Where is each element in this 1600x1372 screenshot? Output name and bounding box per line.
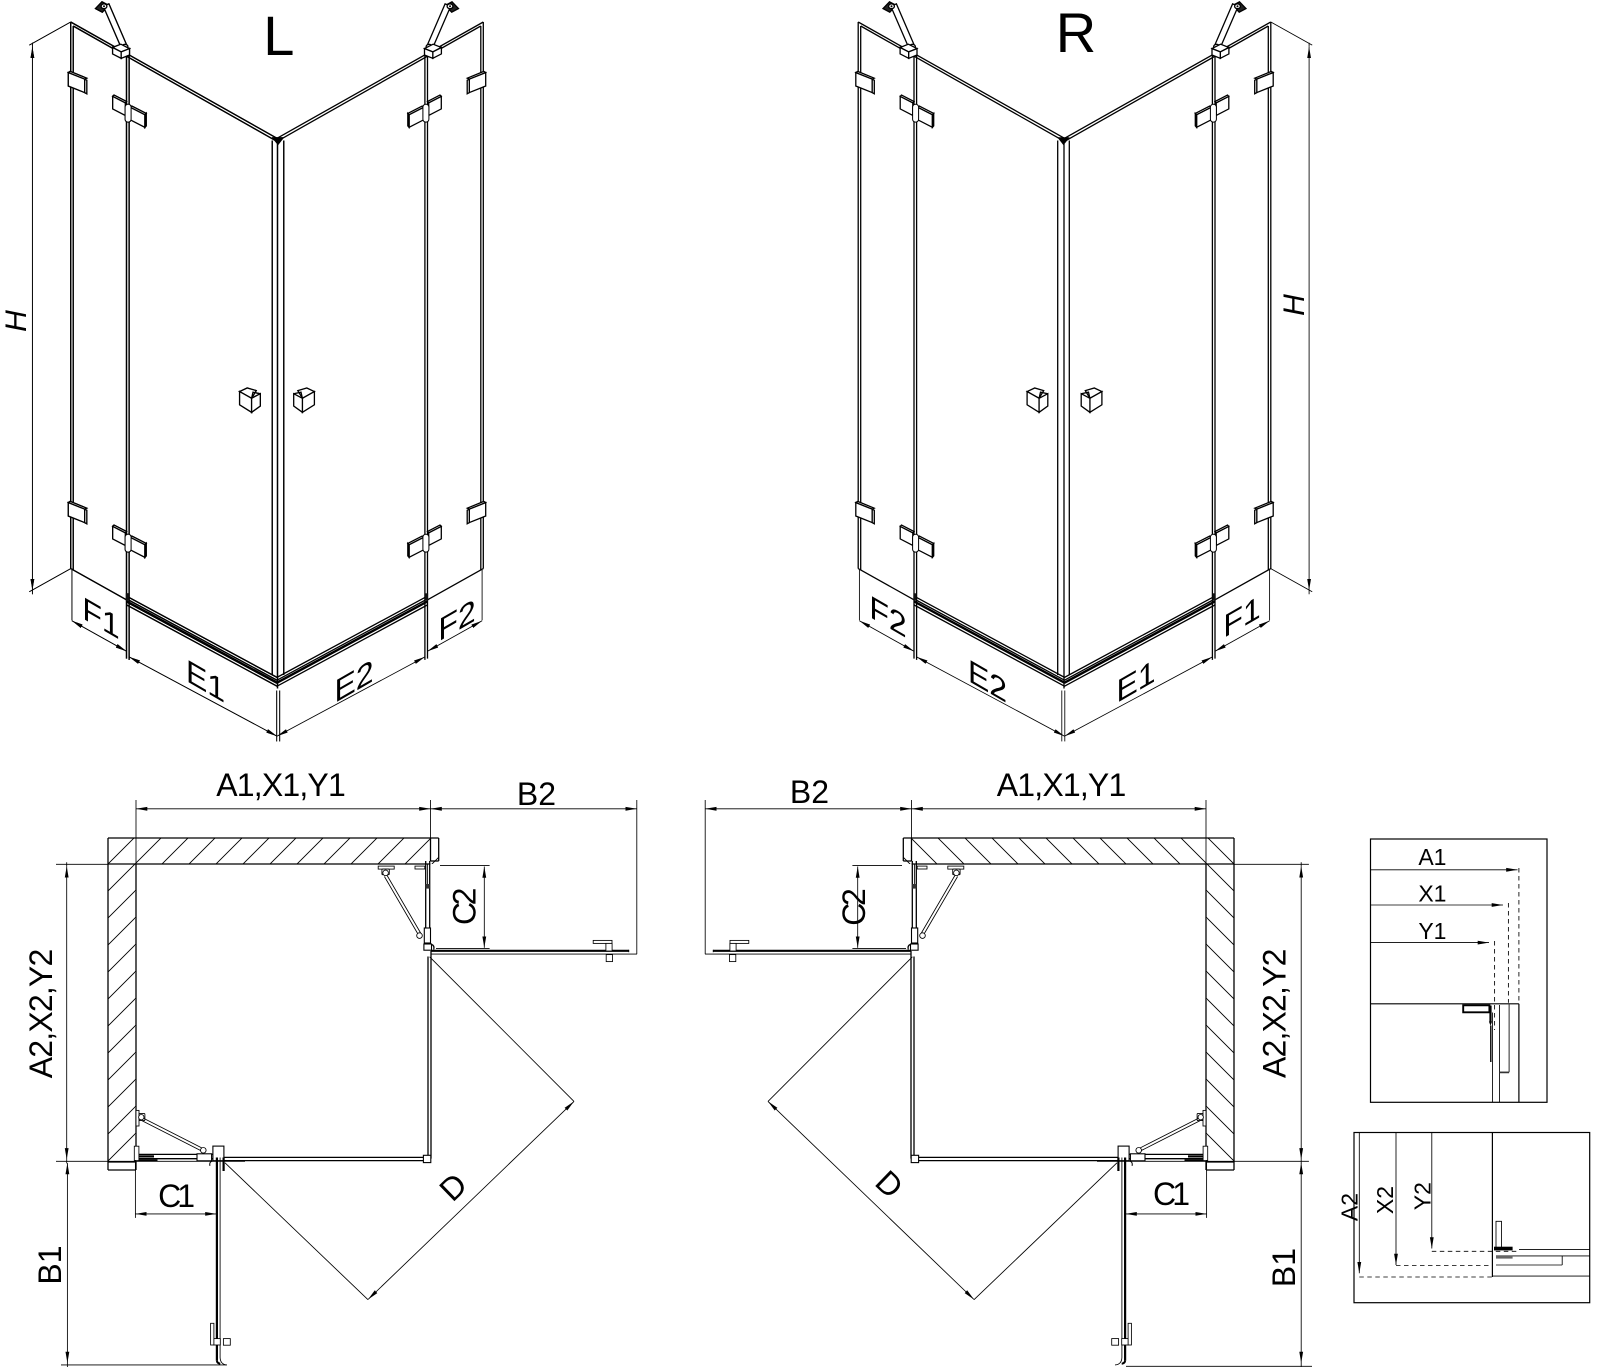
svg-text:Y2: Y2: [1410, 1182, 1436, 1210]
svg-text:C1: C1: [1153, 1176, 1190, 1212]
svg-text:X1: X1: [1418, 881, 1446, 907]
svg-text:C2: C2: [446, 888, 482, 926]
svg-text:H: H: [0, 310, 33, 332]
svg-text:B1: B1: [32, 1245, 68, 1284]
svg-text:Y1: Y1: [1418, 918, 1446, 944]
svg-text:R: R: [1056, 1, 1096, 64]
svg-text:L: L: [263, 4, 294, 67]
svg-text:A2,X2,Y2: A2,X2,Y2: [1257, 949, 1293, 1079]
svg-text:A2,X2,Y2: A2,X2,Y2: [23, 949, 59, 1079]
svg-text:X2: X2: [1372, 1186, 1398, 1214]
svg-text:A1: A1: [1418, 844, 1446, 870]
svg-text:B2: B2: [517, 776, 556, 812]
svg-text:A1,X1,Y1: A1,X1,Y1: [997, 767, 1127, 803]
svg-text:B2: B2: [790, 774, 829, 810]
svg-text:C2: C2: [836, 888, 872, 926]
svg-text:B1: B1: [1266, 1248, 1302, 1287]
svg-text:C1: C1: [158, 1178, 195, 1214]
svg-text:A2: A2: [1336, 1193, 1362, 1221]
svg-text:H: H: [1278, 294, 1311, 316]
svg-text:A1,X1,Y1: A1,X1,Y1: [216, 767, 346, 803]
